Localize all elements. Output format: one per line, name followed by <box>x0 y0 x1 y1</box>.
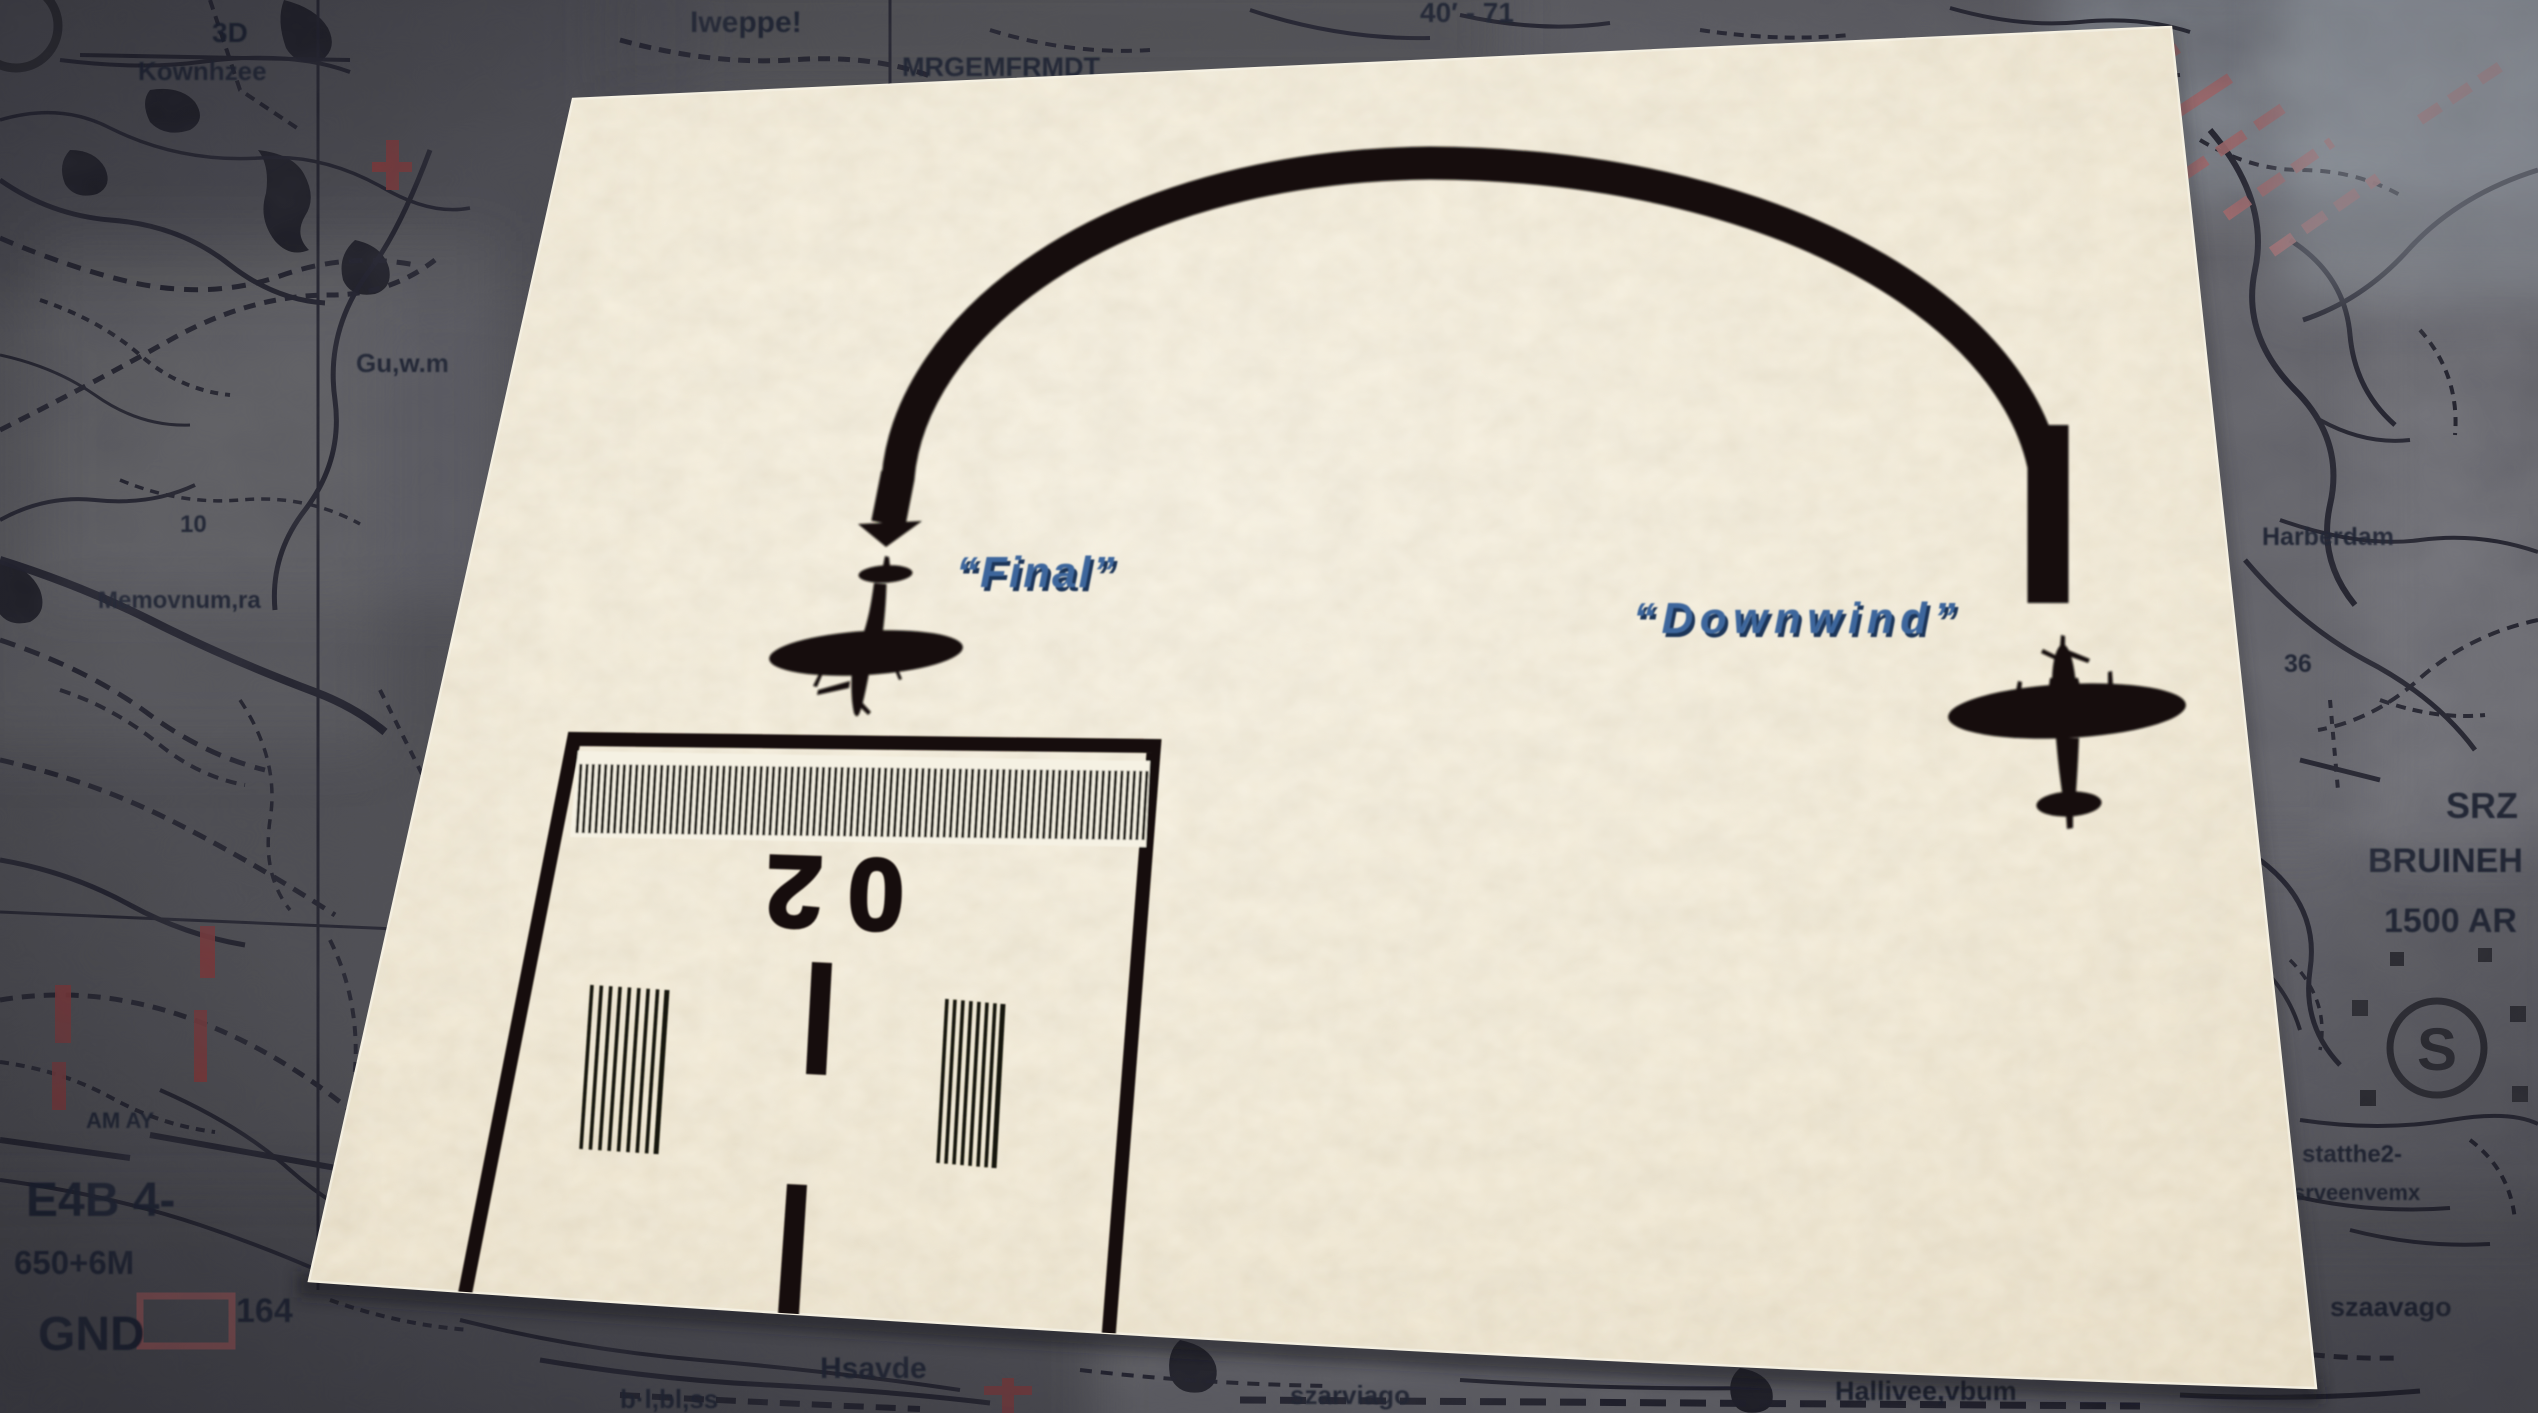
svg-text:02: 02 <box>739 833 906 953</box>
svg-text:“Downwind”: “Downwind” <box>1633 594 1962 643</box>
svg-text:“Final”: “Final” <box>956 548 1117 597</box>
